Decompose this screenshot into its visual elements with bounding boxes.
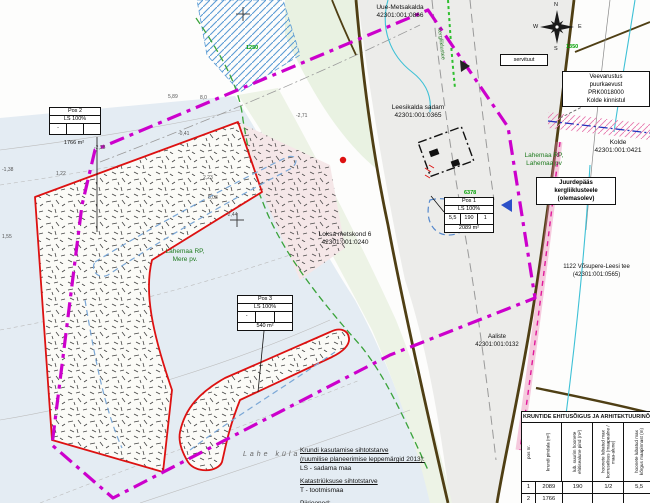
pos-cell: - [50, 124, 67, 134]
label-uue-metsakalda: Uue-Metsakalda 42301:001:0866 [345, 4, 455, 20]
legend: Krundi kasutamise sihtotstarve (ruumilis… [300, 446, 425, 503]
label-lahe-kyla: Lahe küla [243, 451, 300, 458]
table-cell: 1766 [535, 494, 562, 503]
pos-title: Pos 2 [50, 108, 100, 116]
table-header: hoonete lubatud max kõrgus maapinnast (m… [624, 423, 650, 481]
elevation-label: 1,55 [2, 233, 12, 241]
juurdepaas-line: (olemasolev) [539, 195, 613, 203]
protection-zone-line: Lahemaa RP, [160, 248, 210, 256]
compass-e: E [578, 23, 582, 31]
label-lahemaa-rp-lahemaa-pv: Lahemaa RP, Lahemaa pv [518, 152, 570, 168]
elevation-label: 5,89 [168, 93, 178, 101]
label-kolde: Kolde 42301:001:0421 [588, 139, 648, 155]
legend-heading: Krundi kasutamise sihtotstarve [300, 446, 425, 455]
pos-cell: 5,5 [445, 214, 461, 224]
label-juurdepaas: Juurdepääs kergliiklusteele (olemasolev) [536, 177, 616, 205]
label-veevarustus: Veevarustus puurkaevust PRK0018000 Kolde… [562, 71, 650, 107]
pipeline-corridor [548, 112, 650, 140]
legend-heading: Piirjooned: [300, 499, 425, 503]
table-cell: 2 [522, 494, 535, 503]
juurdepaas-line: kergliiklusteele [539, 187, 613, 195]
table-header: lub. suurim hoonete ehitisealune pind (m… [562, 423, 593, 481]
parcel-code: 42301:001:0240 [302, 239, 388, 247]
pos-area: 2089 m² [445, 225, 493, 232]
posbox-pos1: Pos 1 LS 100% 5,5 190 1 2089 m² [444, 197, 494, 233]
pos-cell: - [238, 312, 256, 322]
elevation-label: -2,71 [296, 112, 307, 120]
legend-item: T - tootmismaa [300, 486, 425, 495]
parcel-name: Uue-Metsakalda [345, 4, 455, 12]
protection-zone-line: Lahemaa pv [518, 160, 570, 168]
table-cell: 1 [522, 482, 535, 493]
protection-zone-line: Mere pv. [160, 256, 210, 264]
compass-s: S [554, 45, 558, 53]
posbox-pos2: Pos 2 LS 100% - [49, 107, 101, 135]
pos-cell [256, 312, 274, 322]
pos-area: 540 m² [238, 323, 292, 330]
detail-plan-map: N E S W Uue-Metsakalda 42301:001:0866 se… [0, 0, 650, 503]
road-code: (42301:001:0565) [545, 271, 648, 279]
elevation-label: -2,44 [226, 211, 237, 219]
table-cell: 5,5 [623, 482, 650, 493]
veevarustus-line: puurkaevust [565, 81, 647, 89]
pos-use: LS 100% [238, 304, 292, 312]
elevation-label: -2,28 [94, 144, 105, 152]
pos-cell [84, 124, 100, 134]
compass-w: W [533, 23, 538, 31]
parcel-code: 42301:001:0421 [588, 147, 648, 155]
pos-use: LS 100% [50, 116, 100, 124]
parcel-name: Loksa metskond 6 [302, 231, 388, 239]
veevarustus-line: PRK0018000 [565, 89, 647, 97]
label-lahemaa-rp-mere-pv: Lahemaa RP, Mere pv. [160, 248, 210, 264]
table-cell [592, 494, 623, 503]
parcel-name: Kolde [588, 139, 648, 147]
table-header: pos nr. [522, 423, 535, 481]
elevation-label: 8,0 [200, 94, 207, 102]
parcel-code: 42301:001:0132 [462, 341, 532, 349]
elevation-label: 2,23 [203, 174, 213, 182]
table-row: 2 1766 [522, 494, 650, 503]
table-title: KRUNTIDE EHITUSÕIGUS JA ARHITEKTUURINÕUD… [522, 412, 650, 423]
protection-zone-line: Lahemaa RP, [518, 152, 570, 160]
green-number: 1250 [246, 44, 258, 52]
legend-item: LS - sadama maa [300, 464, 425, 473]
table-cell [623, 494, 650, 503]
elevation-label: -0,41 [178, 130, 189, 138]
label-servituut: servituut [500, 54, 548, 66]
elevation-label: 6,03 [208, 194, 218, 202]
red-point-marker [340, 157, 346, 163]
veevarustus-line: Kolde kinnistul [565, 97, 647, 105]
parcel-code: 42301:001:0365 [368, 112, 468, 120]
building-rights-table: KRUNTIDE EHITUSÕIGUS JA ARHITEKTUURINÕUD… [521, 411, 650, 503]
pos-cell: 190 [461, 214, 477, 224]
pos-cell: 1 [478, 214, 493, 224]
legend-heading: Katastriüksuse sihtotstarve [300, 477, 425, 486]
legend-subheading: (ruumilise planeerimise leppemärgid 2013… [300, 455, 425, 464]
veevarustus-line: Veevarustus [565, 73, 647, 81]
pos-use: LS 100% [445, 206, 493, 214]
label-aaliste: Aaliste 42301:001:0132 [462, 333, 532, 349]
posbox-pos2-area: 1766 m² [49, 139, 99, 147]
pos-cell [67, 124, 84, 134]
road-name: 1122 Võsupere-Leesi tee [545, 263, 648, 271]
posbox-pos3: Pos 3 LS 100% - 540 m² [237, 295, 293, 331]
label-loksa-metskond: Loksa metskond 6 42301:001:0240 [302, 231, 388, 247]
table-header-row: pos nr. krundi pindala (m²) lub. suurim … [522, 423, 650, 482]
parcel-name: Aaliste [462, 333, 532, 341]
pos-cell [275, 312, 292, 322]
pos-title: Pos 1 [445, 198, 493, 206]
table-row: 1 2089 190 1/2 5,5 [522, 482, 650, 494]
table-cell: 1/2 [592, 482, 623, 493]
label-vosupere-leesi-tee: 1122 Võsupere-Leesi tee (42301:001:0565) [545, 263, 648, 279]
juurdepaas-line: Juurdepääs [539, 179, 613, 187]
green-number: 1350 [566, 43, 578, 51]
label-leesikalda-sadam: Leesikalda sadam 42301:001:0365 [368, 104, 468, 120]
elevation-label: -1,38 [2, 166, 13, 174]
table-header: krundi pindala (m²) [535, 423, 562, 481]
pos-title: Pos 3 [238, 296, 292, 304]
compass-n: N [554, 1, 558, 9]
table-cell: 190 [562, 482, 593, 493]
table-cell [562, 494, 593, 503]
elevation-label: 1,22 [56, 170, 66, 178]
table-cell: 2089 [535, 482, 562, 493]
parcel-code: 42301:001:0866 [345, 12, 455, 20]
green-number: 6378 [464, 189, 476, 197]
parcel-name: Leesikalda sadam [368, 104, 468, 112]
table-header: hoonete lubatud max korruselisus (maapea… [593, 423, 624, 481]
